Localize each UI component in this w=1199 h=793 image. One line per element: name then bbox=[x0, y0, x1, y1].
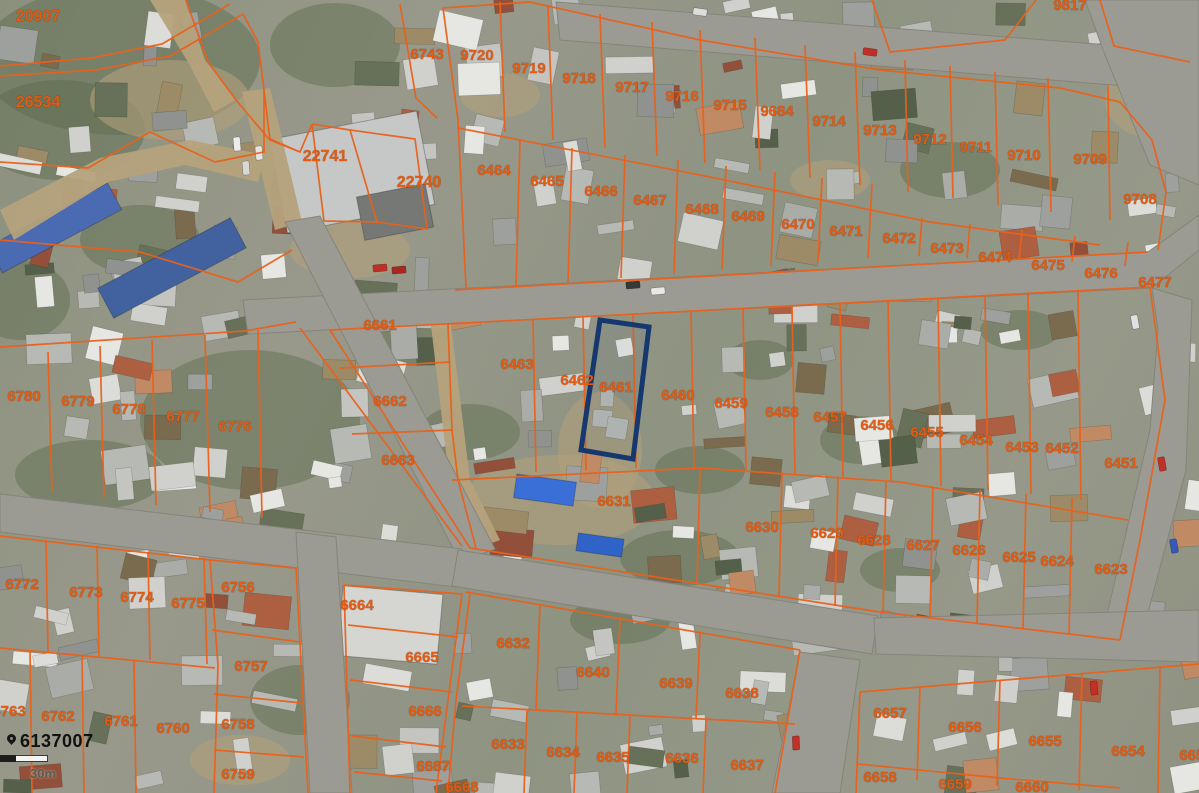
parcel-label-6655: 6655 bbox=[1028, 733, 1061, 750]
parcel-label-6624: 6624 bbox=[1040, 553, 1074, 570]
parcel-label-6465: 6465 bbox=[530, 173, 563, 190]
parcel-label-6453: 6453 bbox=[1005, 439, 1038, 456]
parcel-label-6760: 6760 bbox=[156, 720, 189, 737]
parcel-label-6631: 6631 bbox=[597, 493, 630, 510]
scale-bar-light-segment bbox=[16, 755, 48, 762]
parcel-label-9720: 9720 bbox=[460, 47, 493, 64]
parcel-label-6460: 6460 bbox=[661, 387, 694, 404]
parcel-label-26534: 26534 bbox=[16, 94, 61, 111]
parcel-label-6654: 6654 bbox=[1111, 743, 1145, 760]
parcel-label-6452: 6452 bbox=[1045, 440, 1078, 457]
parcel-label-6658: 6658 bbox=[863, 769, 896, 786]
parcel-label-6780: 6780 bbox=[7, 388, 40, 405]
parcel-label-6758: 6758 bbox=[221, 716, 254, 733]
parcel-label-6623: 6623 bbox=[1094, 561, 1127, 578]
parcel-label-6464: 6464 bbox=[477, 162, 511, 179]
parcel-label-6660: 6660 bbox=[1015, 779, 1048, 793]
parcel-label-6640: 6640 bbox=[576, 664, 609, 681]
scale-bar-dark-segment bbox=[0, 755, 16, 762]
parcel-label-6628: 6628 bbox=[857, 532, 890, 549]
parcel-label-9713: 9713 bbox=[863, 122, 896, 139]
parcel-label-9714: 9714 bbox=[812, 113, 846, 130]
parcel-label-6659: 6659 bbox=[938, 776, 971, 793]
parcel-label-6469: 6469 bbox=[731, 208, 764, 225]
parcel-label-6476: 6476 bbox=[1084, 265, 1117, 282]
parcel-label-9711: 9711 bbox=[960, 139, 993, 156]
parcel-label-9715: 9715 bbox=[713, 97, 746, 114]
map-viewport[interactable]: 2090726534227412274067439720971997189717… bbox=[0, 0, 1199, 793]
parcel-label-9717: 9717 bbox=[615, 79, 648, 96]
parcel-label-6662: 6662 bbox=[373, 393, 406, 410]
parcel-label-6633: 6633 bbox=[491, 736, 524, 753]
parcel-label-9684: 9684 bbox=[760, 103, 794, 120]
parcel-label-6635: 6635 bbox=[596, 749, 629, 766]
parcel-label-6451: 6451 bbox=[1104, 455, 1137, 472]
parcel-label-6759: 6759 bbox=[221, 766, 254, 783]
map-id-text: 6137007 bbox=[20, 731, 94, 752]
parcel-label-6664: 6664 bbox=[340, 597, 374, 614]
parcel-label-6666: 6666 bbox=[408, 703, 441, 720]
parcel-label-6639: 6639 bbox=[659, 675, 692, 692]
parcel-label-6653: 6653 bbox=[1179, 747, 1199, 764]
parcel-label-22740: 22740 bbox=[397, 174, 442, 191]
parcel-label-6778: 6778 bbox=[112, 401, 145, 418]
parcel-label-6657: 6657 bbox=[873, 705, 906, 722]
parcel-label-6779: 6779 bbox=[61, 393, 94, 410]
parcel-label-6625: 6625 bbox=[1002, 549, 1035, 566]
parcel-label-6638: 6638 bbox=[725, 685, 758, 702]
parcel-label-6459: 6459 bbox=[714, 395, 747, 412]
parcel-label-9716: 9716 bbox=[665, 88, 698, 105]
parcel-label-6632: 6632 bbox=[496, 635, 529, 652]
parcel-label-6637: 6637 bbox=[730, 757, 763, 774]
parcel-label-6776: 6776 bbox=[218, 418, 251, 435]
parcel-label-6773: 6773 bbox=[69, 584, 102, 601]
parcel-label-6634: 6634 bbox=[546, 744, 580, 761]
parcel-label-6457: 6457 bbox=[813, 409, 846, 426]
parcel-label-6468: 6468 bbox=[685, 201, 718, 218]
scale-label: 30m bbox=[30, 766, 56, 781]
parcel-label-6458: 6458 bbox=[765, 404, 798, 421]
parcel-label-20907: 20907 bbox=[16, 8, 61, 25]
parcel-label-6761: 6761 bbox=[104, 713, 137, 730]
parcel-label-9708: 9708 bbox=[1123, 191, 1156, 208]
map-id-label: 6137007 bbox=[6, 731, 94, 752]
parcel-label-6626: 6626 bbox=[952, 542, 985, 559]
parcel-label-6663: 6663 bbox=[381, 452, 414, 469]
parcel-label-6756: 6756 bbox=[221, 579, 254, 596]
parcel-label-6763: 6763 bbox=[0, 703, 26, 720]
parcel-label-6743: 6743 bbox=[410, 46, 443, 63]
parcel-label-9709: 9709 bbox=[1073, 151, 1106, 168]
parcel-label-6627: 6627 bbox=[906, 537, 939, 554]
parcel-label-6774: 6774 bbox=[120, 589, 154, 606]
parcel-label-6668: 6668 bbox=[445, 779, 478, 793]
parcel-label-6630: 6630 bbox=[745, 519, 778, 536]
parcel-label-22741: 22741 bbox=[303, 148, 348, 165]
parcel-label-6656: 6656 bbox=[948, 719, 981, 736]
parcel-label-9719: 9719 bbox=[512, 60, 545, 77]
parcel-label-6762: 6762 bbox=[41, 708, 74, 725]
parcel-label-6461: 6461 bbox=[599, 379, 632, 396]
parcel-label-6463: 6463 bbox=[500, 356, 533, 373]
parcel-label-6629: 6629 bbox=[810, 525, 843, 542]
parcel-label-6455: 6455 bbox=[910, 424, 943, 441]
parcel-label-6667: 6667 bbox=[416, 758, 449, 775]
parcel-label-6665: 6665 bbox=[405, 649, 438, 666]
parcel-label-6466: 6466 bbox=[584, 183, 617, 200]
parcel-label-6475: 6475 bbox=[1031, 257, 1064, 274]
parcel-label-6470: 6470 bbox=[781, 216, 814, 233]
parcel-label-6777: 6777 bbox=[166, 408, 199, 425]
parcel-label-6775: 6775 bbox=[171, 595, 204, 612]
location-marker-icon bbox=[6, 734, 17, 749]
scale-bar bbox=[0, 755, 48, 762]
parcel-label-6462: 6462 bbox=[560, 372, 593, 389]
parcel-label-6757: 6757 bbox=[234, 658, 267, 675]
parcel-label-6477: 6477 bbox=[1138, 274, 1171, 291]
parcel-label-6472: 6472 bbox=[882, 230, 915, 247]
aerial-imagery-canvas: 2090726534227412274067439720971997189717… bbox=[0, 0, 1199, 793]
parcel-label-9718: 9718 bbox=[562, 70, 595, 87]
parcel-label-6473: 6473 bbox=[930, 240, 963, 257]
parcel-label-6772: 6772 bbox=[5, 576, 38, 593]
parcel-label-6636: 6636 bbox=[665, 750, 698, 767]
parcel-label-6456: 6456 bbox=[860, 417, 893, 434]
parcel-label-9712: 9712 bbox=[913, 131, 946, 148]
parcel-label-6661: 6661 bbox=[363, 317, 396, 334]
parcel-label-9710: 9710 bbox=[1007, 147, 1040, 164]
parcel-label-6474: 6474 bbox=[978, 249, 1012, 266]
parcel-label-6471: 6471 bbox=[829, 223, 862, 240]
parcel-label-6467: 6467 bbox=[633, 192, 666, 209]
parcel-label-9817: 9817 bbox=[1053, 0, 1086, 14]
parcel-label-6454: 6454 bbox=[959, 432, 993, 449]
